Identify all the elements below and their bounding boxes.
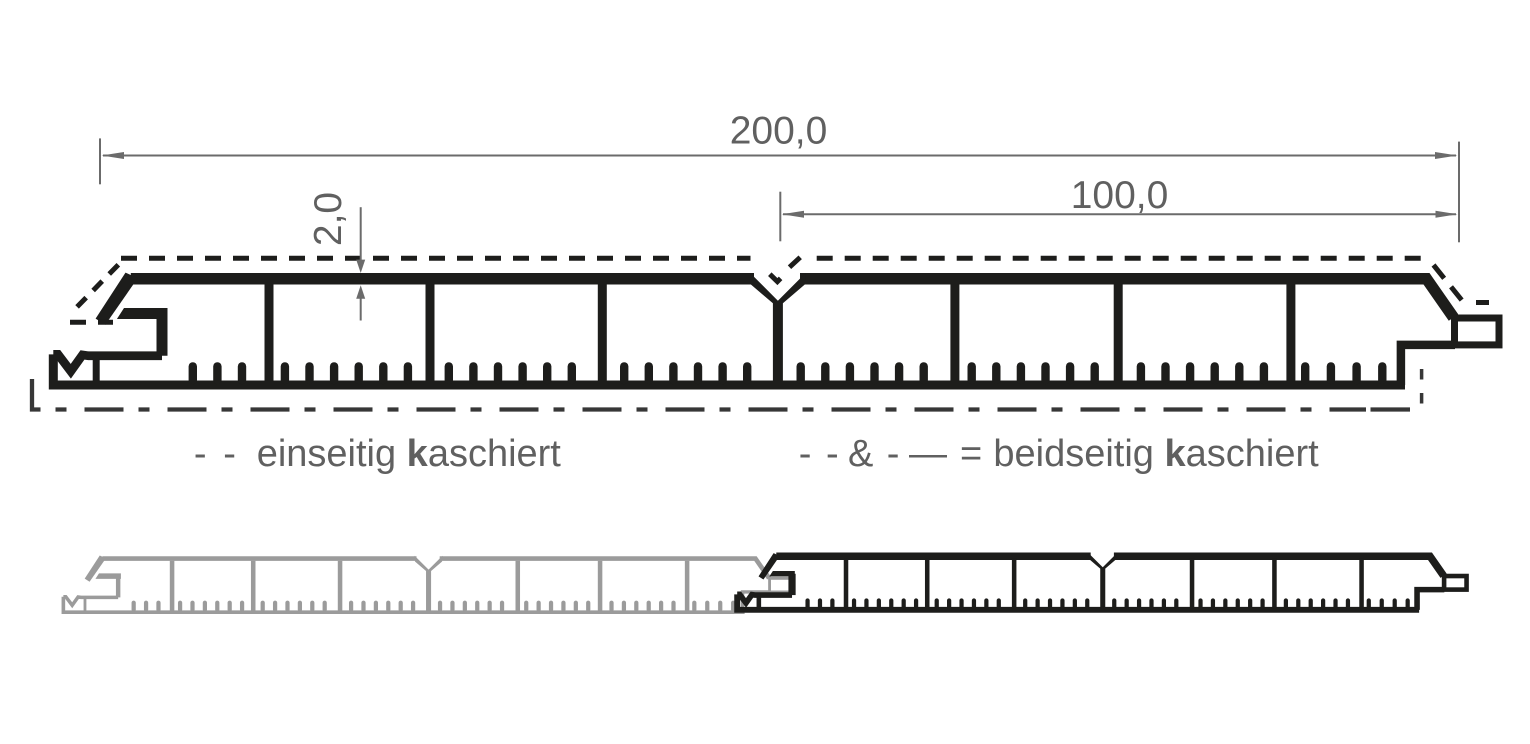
svg-text:--einseitig kaschiert: --einseitig kaschiert [194, 433, 561, 475]
svg-text:2,0: 2,0 [307, 192, 350, 246]
svg-text:200,0: 200,0 [730, 110, 828, 153]
svg-text:100,0: 100,0 [1071, 174, 1169, 217]
svg-text:--&-—=beidseitig kaschiert: --&-—=beidseitig kaschiert [799, 433, 1319, 475]
